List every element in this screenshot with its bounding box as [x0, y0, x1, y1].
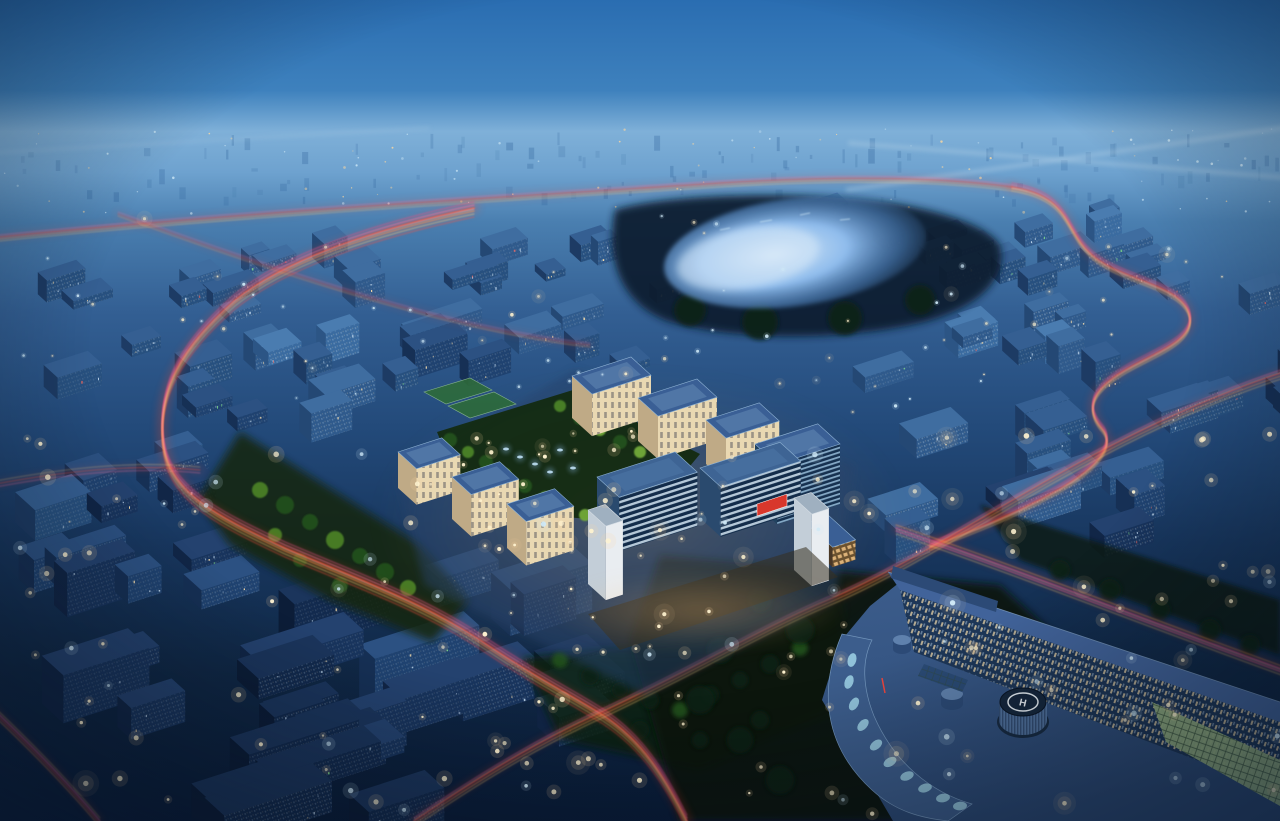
scene-canvas: H — [0, 0, 1280, 821]
vignette — [0, 0, 1280, 821]
aerial-night-city-rendering: H — [0, 0, 1280, 821]
